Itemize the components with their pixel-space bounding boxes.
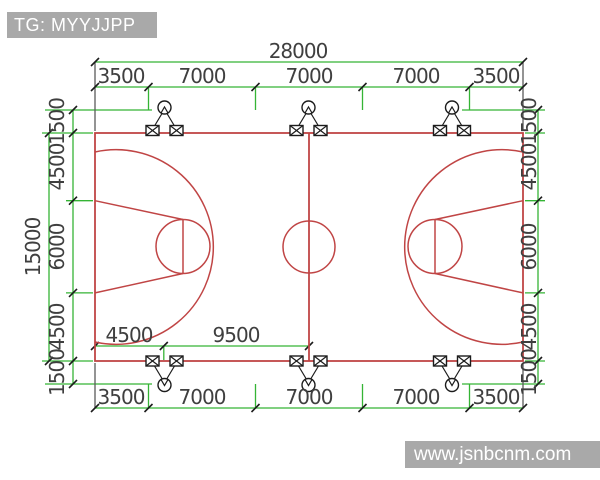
left-half-markings bbox=[95, 150, 213, 345]
court-plan-drawing: 28000 3500 7000 7000 7000 3500 4500 9500… bbox=[0, 0, 600, 480]
dim-top-seg-1: 3500 bbox=[98, 64, 145, 88]
dim-inner-seg-2: 9500 bbox=[213, 323, 260, 347]
dim-right-seg-3: 6000 bbox=[517, 223, 541, 270]
dim-top-seg-4: 7000 bbox=[393, 64, 440, 88]
dim-right-seg-5: 1500 bbox=[517, 349, 541, 396]
dim-bottom-seg-2: 7000 bbox=[179, 385, 226, 409]
floodlight-symbol bbox=[290, 101, 327, 136]
dim-bottom-seg-1: 3500 bbox=[98, 385, 145, 409]
dim-right-seg-2: 4500 bbox=[517, 143, 541, 190]
floodlight-symbol bbox=[146, 101, 183, 136]
dim-left-seg-5: 1500 bbox=[45, 349, 69, 396]
three-point-arc-left bbox=[95, 150, 213, 345]
dim-top-seg-3: 7000 bbox=[286, 64, 333, 88]
cad-screenshot: 28000 3500 7000 7000 7000 3500 4500 9500… bbox=[0, 0, 600, 480]
dim-inner-seg-1: 4500 bbox=[106, 323, 153, 347]
dim-bottom-seg-4: 7000 bbox=[393, 385, 440, 409]
dim-bottom-seg-3: 7000 bbox=[286, 385, 333, 409]
dim-left-seg-3: 6000 bbox=[45, 223, 69, 270]
dim-right-seg-1: 1500 bbox=[517, 98, 541, 145]
dim-left-seg-2: 4500 bbox=[45, 143, 69, 190]
dim-left-seg-4: 4500 bbox=[45, 303, 69, 350]
watermark-tag-badge: TG: MYYJJPP bbox=[7, 12, 157, 38]
watermark-website-text: www.jsnbcnm.com bbox=[414, 444, 571, 466]
dim-top-total: 28000 bbox=[269, 39, 328, 63]
dim-top-seg-5: 3500 bbox=[473, 64, 520, 88]
three-point-arc-right bbox=[405, 150, 523, 345]
floodlight-symbol bbox=[434, 101, 471, 136]
dim-left-seg-1: 1500 bbox=[45, 98, 69, 145]
dim-left-total: 15000 bbox=[21, 217, 45, 276]
dim-bottom-seg-5: 3500 bbox=[473, 385, 520, 409]
watermark-tag-text: TG: MYYJJPP bbox=[14, 15, 136, 36]
watermark-website-badge: www.jsnbcnm.com bbox=[405, 441, 600, 468]
dimension-labels: 28000 3500 7000 7000 7000 3500 4500 9500… bbox=[21, 39, 541, 409]
right-half-markings bbox=[405, 150, 523, 345]
floodlight-symbols-top bbox=[146, 101, 471, 136]
dim-top-seg-2: 7000 bbox=[179, 64, 226, 88]
dim-right-seg-4: 4500 bbox=[517, 303, 541, 350]
court-outline bbox=[95, 133, 523, 361]
